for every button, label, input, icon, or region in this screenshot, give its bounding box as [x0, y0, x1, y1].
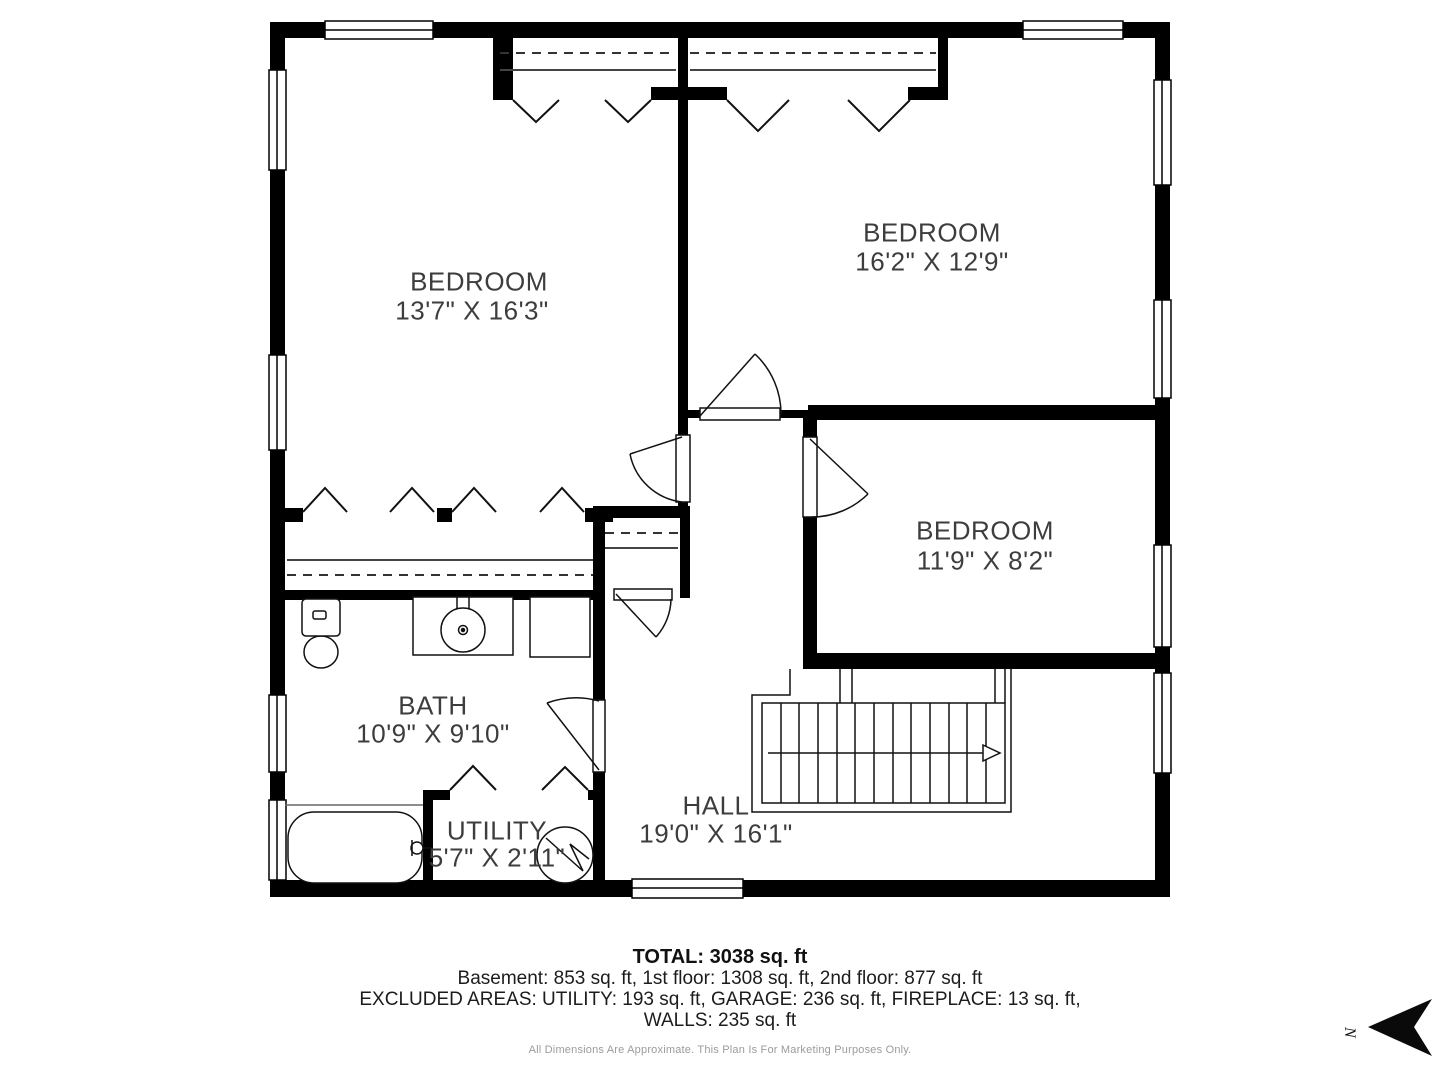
bathtub: [288, 812, 432, 883]
utility-dims: 5'7" X 2'11": [429, 843, 566, 874]
walls-area: WALLS: 235 sq. ft: [0, 1010, 1440, 1032]
bedroom2-label: BEDROOM: [863, 218, 1001, 249]
window: [1154, 80, 1171, 185]
staircase: [752, 669, 1011, 812]
bath-door: [547, 698, 605, 772]
hall-label: HALL: [682, 791, 749, 822]
bedroom1-label: BEDROOM: [410, 267, 548, 298]
window: [1154, 545, 1171, 647]
disclaimer: All Dimensions Are Approximate. This Pla…: [0, 1044, 1440, 1056]
bedroom3-label: BEDROOM: [916, 516, 1054, 547]
linen-closet-door: [614, 589, 672, 637]
hall-dims: 19'0" X 16'1": [639, 819, 792, 850]
window: [1154, 300, 1171, 398]
bath-dims: 10'9" X 9'10": [356, 719, 509, 750]
shower-cabinet: [530, 597, 590, 657]
window: [269, 695, 286, 772]
closet-rod-lines: [287, 53, 936, 575]
bedroom1-dims: 13'7" X 16'3": [395, 296, 548, 327]
window: [269, 70, 286, 170]
total-area: TOTAL: 3038 sq. ft: [0, 946, 1440, 969]
bedroom3-dims: 11'9" X 8'2": [917, 546, 1054, 577]
window: [1154, 673, 1171, 773]
excluded-areas: EXCLUDED AREAS: UTILITY: 193 sq. ft, GAR…: [0, 989, 1440, 1011]
closet-shelf-lines: [285, 70, 936, 805]
bedroom1-door: [630, 435, 690, 502]
interior-walls: [270, 38, 1155, 897]
floor-areas: Basement: 853 sq. ft, 1st floor: 1308 sq…: [0, 968, 1440, 990]
floor-plan: N BEDROOM 13'7" X 16'3" BEDROOM 16'2" X …: [0, 0, 1440, 1080]
window: [1023, 21, 1123, 39]
exterior-walls: [270, 22, 1170, 897]
windows: [269, 21, 1171, 898]
window: [325, 21, 433, 39]
toilet: [302, 599, 340, 668]
window: [269, 355, 286, 450]
bedroom3-door: [803, 437, 868, 517]
bedroom2-dims: 16'2" X 12'9": [855, 247, 1008, 278]
closet-bifold-doors: [303, 100, 910, 790]
sink-vanity: [413, 597, 513, 655]
window: [632, 879, 743, 898]
bath-label: BATH: [398, 691, 467, 722]
bedroom2-door: [700, 354, 781, 420]
window: [269, 800, 286, 880]
floor-plan-canvas: N: [0, 0, 1440, 1080]
